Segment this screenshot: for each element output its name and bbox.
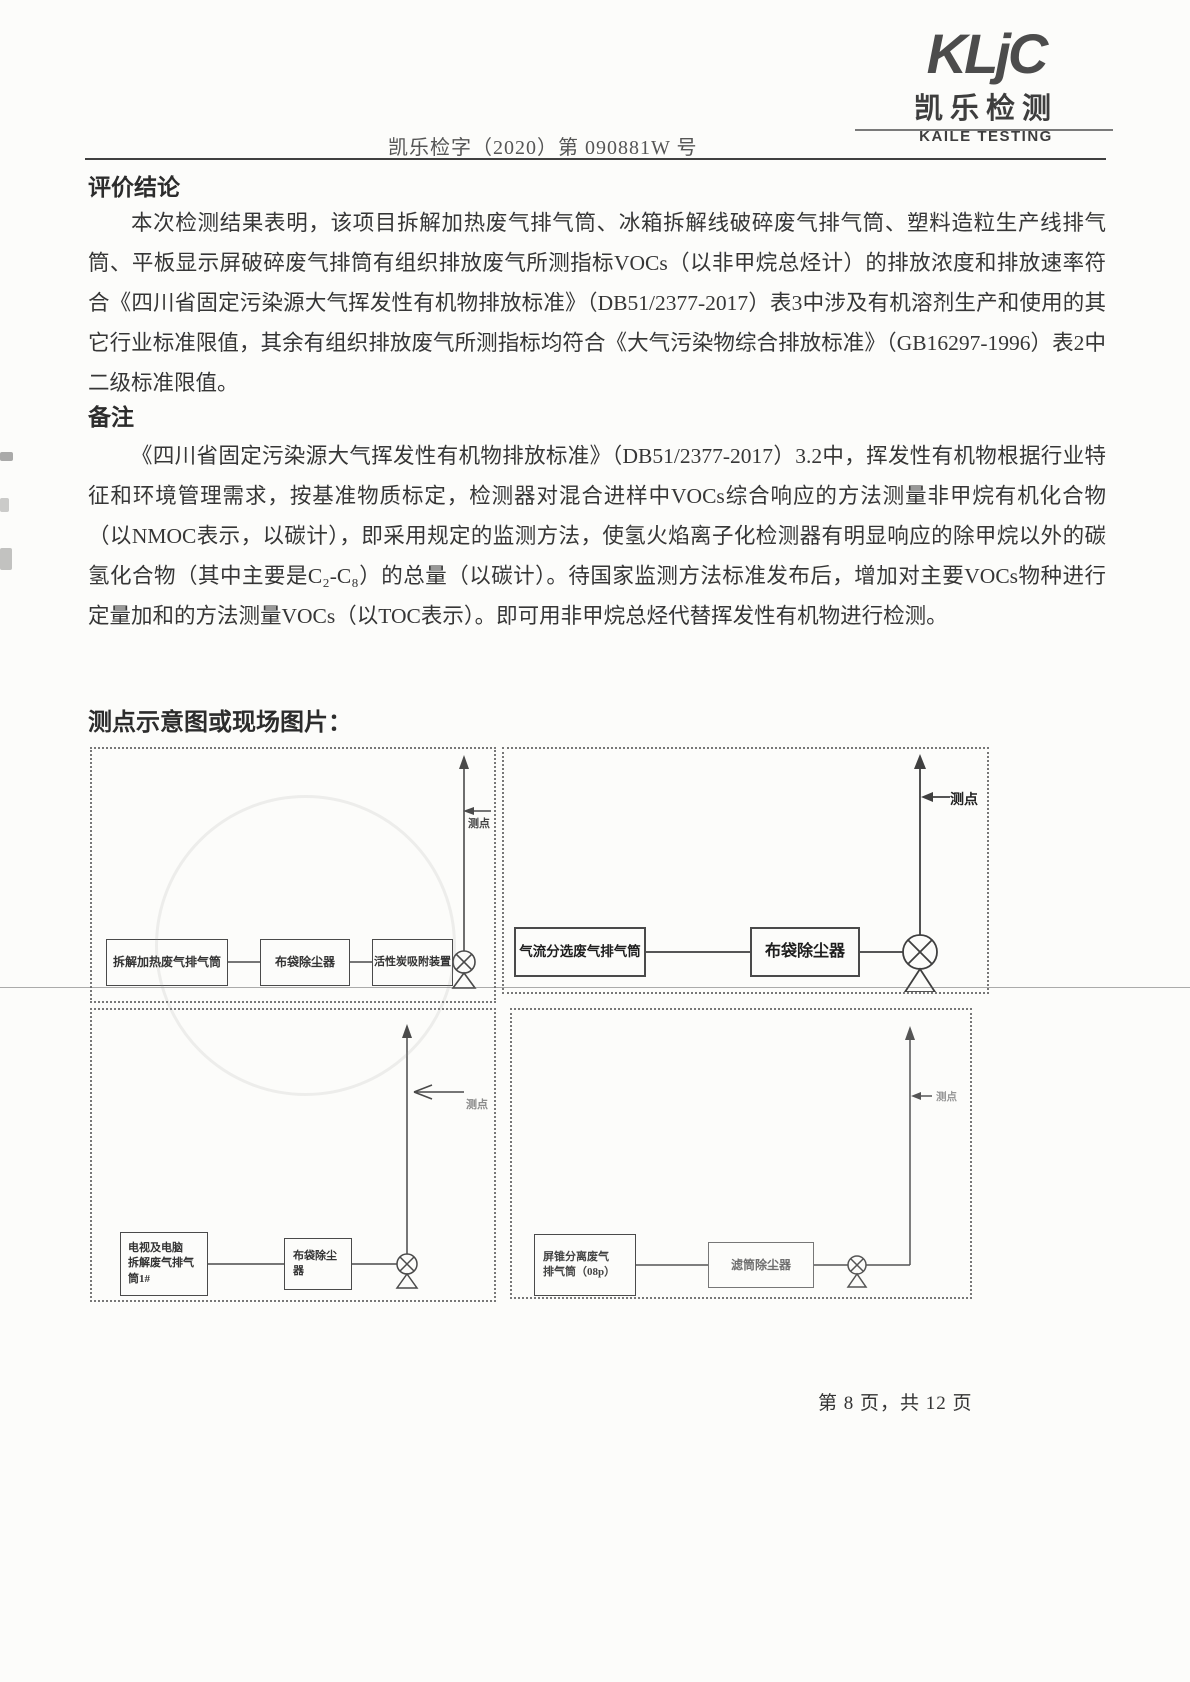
measure-point-arrow-icon xyxy=(911,1092,921,1100)
measure-point-label: 测点 xyxy=(468,815,490,831)
up-arrow-icon xyxy=(459,755,469,769)
process-box: 气流分选废气排气筒 xyxy=(514,927,646,977)
conclusion-paragraph: 本次检测结果表明，该项目拆解加热废气排气筒、冰箱拆解线破碎废气排气筒、塑料造粒生… xyxy=(88,203,1106,403)
stack-base-icon xyxy=(397,1274,417,1288)
diagram-panel-2: 气流分选废气排气筒 布袋除尘器 测点 xyxy=(502,747,989,994)
up-arrow-icon xyxy=(905,1026,915,1040)
measure-point-arrow-icon xyxy=(921,792,933,802)
up-arrow-icon xyxy=(914,754,926,769)
measure-point-label: 测点 xyxy=(466,1096,488,1112)
logo-company-name-cn: 凯乐检测 xyxy=(862,85,1110,127)
process-box: 布袋除尘 器 xyxy=(284,1238,352,1290)
scan-smudge xyxy=(0,548,12,570)
conclusion-heading: 评价结论 xyxy=(88,168,180,202)
logo-underline xyxy=(855,129,1113,131)
company-logo: KLjC 凯乐检测 KAILE TESTING xyxy=(862,26,1110,145)
remark-heading: 备注 xyxy=(88,398,134,432)
stack-base-icon xyxy=(848,1274,866,1287)
scan-smudge xyxy=(0,452,13,461)
stamp-bleedthrough xyxy=(155,795,456,1096)
scan-smudge xyxy=(0,498,9,512)
process-box: 滤筒除尘器 xyxy=(708,1242,814,1288)
diagram-section-heading: 测点示意图或现场图片： xyxy=(88,702,352,737)
measure-point-label: 测点 xyxy=(950,789,978,809)
remark-paragraph: 《四川省固定污染源大气挥发性有机物排放标准》（DB51/2377-2017）3.… xyxy=(88,436,1106,636)
logo-brand-icon: KLjC xyxy=(862,26,1110,82)
diagram-panel-4: 屏锥分离废气 排气筒（08p） 滤筒除尘器 测点 xyxy=(510,1008,972,1299)
stack-base-icon xyxy=(453,973,475,988)
process-box: 电视及电脑 拆解废气排气 筒1# xyxy=(120,1232,208,1296)
report-number: 凯乐检字（2020）第 090881W 号 xyxy=(388,131,698,160)
header-rule xyxy=(85,158,1106,160)
page-number: 第 8 页，共 12 页 xyxy=(818,1388,973,1415)
process-box: 布袋除尘器 xyxy=(750,927,860,977)
measure-point-label: 测点 xyxy=(936,1089,957,1104)
process-box: 屏锥分离废气 排气筒（08p） xyxy=(534,1234,636,1296)
stack-base-icon xyxy=(905,969,935,992)
